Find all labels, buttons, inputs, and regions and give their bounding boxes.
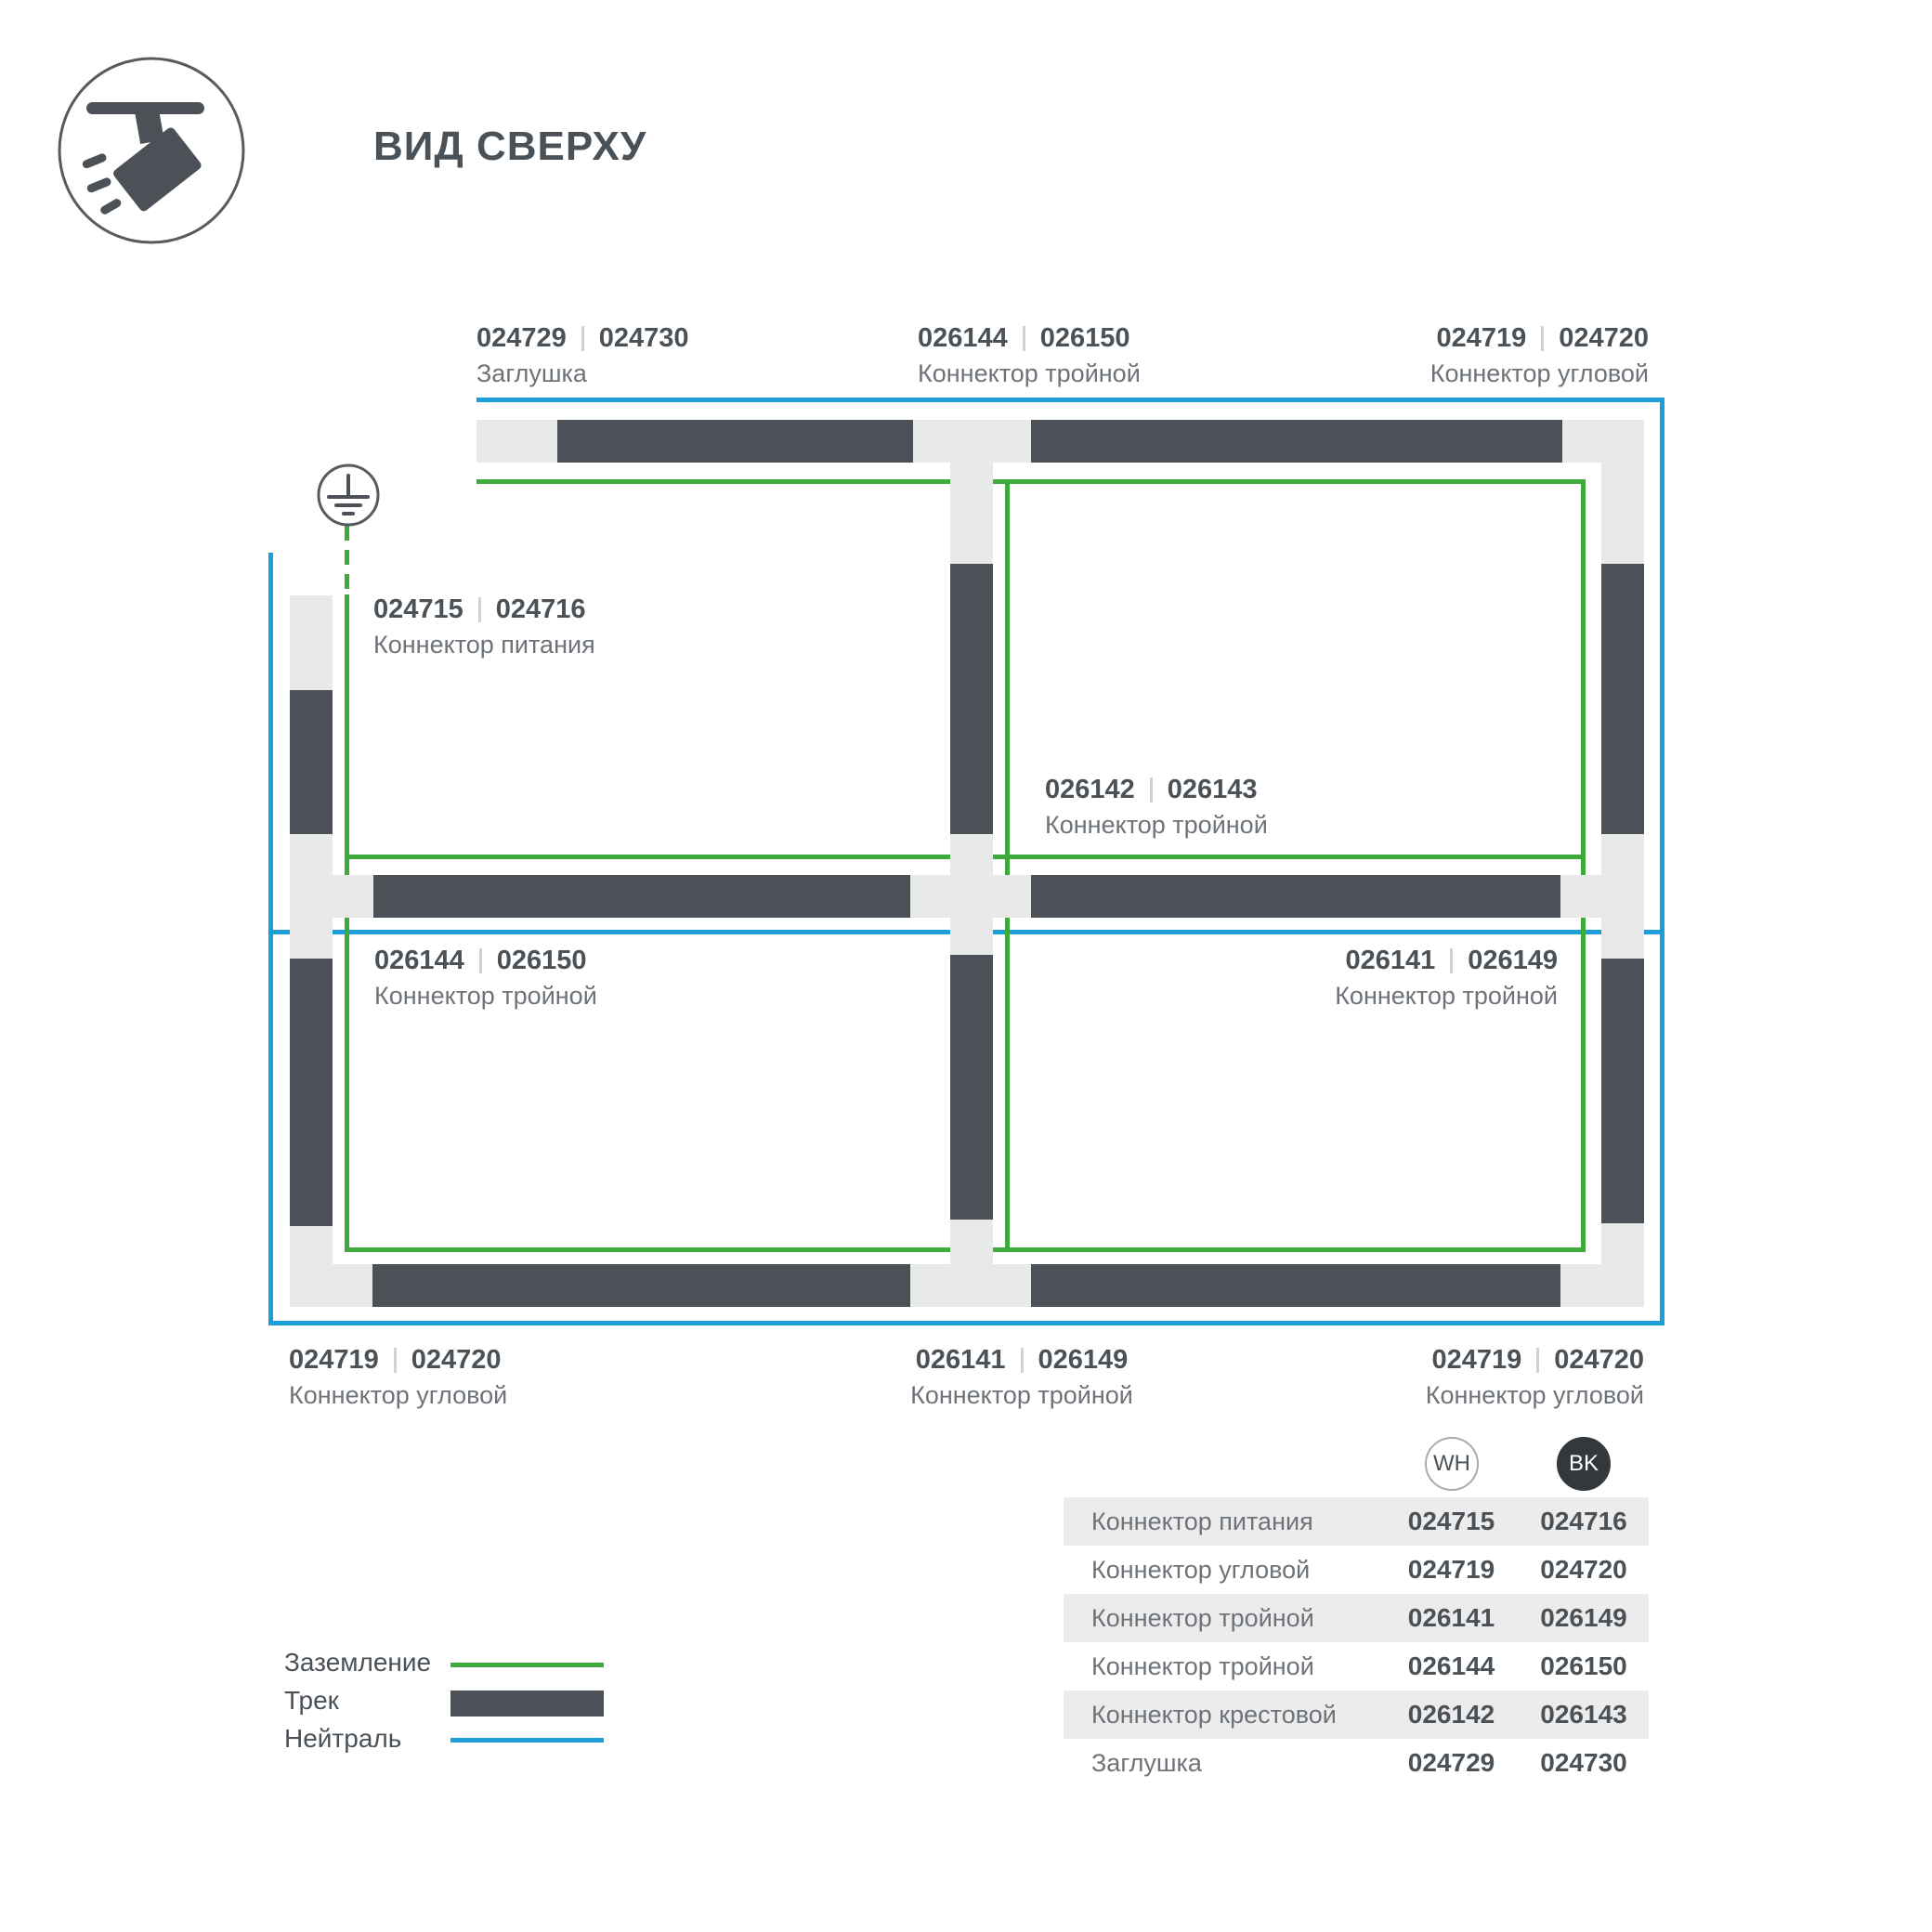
track-segment xyxy=(290,690,333,834)
part-numbers: 026144 026150 xyxy=(918,323,1141,353)
ground-line-right xyxy=(1581,479,1586,1252)
page: ВИД СВЕРХУ 024 xyxy=(0,0,1932,1932)
separator xyxy=(1150,777,1153,803)
track-segment xyxy=(1031,875,1560,918)
separator xyxy=(1450,948,1453,973)
separator xyxy=(1021,1348,1024,1373)
ground-line-center xyxy=(1005,479,1010,1252)
legend-swatch-neutral xyxy=(450,1738,604,1743)
ground-dash xyxy=(345,574,349,589)
label-corner-top-right: 024719 024720 Коннектор угловой xyxy=(1430,323,1649,387)
neutral-line-top xyxy=(476,398,1664,402)
label-end-cap: 024729 024730 Заглушка xyxy=(476,323,689,387)
parts-table: Коннектор питания 024715 024716 Коннекто… xyxy=(1064,1497,1649,1787)
label-cross-connector: 026142 026143 Коннектор тройной xyxy=(1045,775,1268,839)
table-row: Коннектор тройной 026144 026150 xyxy=(1064,1642,1649,1690)
label-t-connector-top: 026144 026150 Коннектор тройной xyxy=(918,323,1141,387)
label-power-connector: 024715 024716 Коннектор питания xyxy=(373,594,595,659)
separator xyxy=(479,948,482,973)
ground-dash xyxy=(345,526,349,541)
legend-label-track: Трек xyxy=(284,1686,339,1716)
track-segment xyxy=(290,959,333,1226)
label-corner-bottom-left: 024719 024720 Коннектор угловой xyxy=(289,1345,507,1409)
label-corner-bottom-right: 024719 024720 Коннектор угловой xyxy=(1426,1345,1644,1409)
part-numbers: 024719 024720 xyxy=(1430,323,1649,353)
separator xyxy=(1536,1348,1539,1373)
label-t-connector-right: 026141 026149 Коннектор тройной xyxy=(1335,946,1558,1010)
track-segment xyxy=(372,1264,910,1307)
part-numbers: 026144 026150 xyxy=(374,946,597,975)
separator xyxy=(1023,326,1025,351)
legend-swatch-track xyxy=(450,1690,604,1717)
track-segment xyxy=(373,875,910,918)
neutral-line-bottom xyxy=(268,1321,1664,1325)
track-segment xyxy=(1031,1264,1560,1307)
part-numbers: 024719 024720 xyxy=(1426,1345,1644,1375)
separator xyxy=(478,597,481,622)
ground-dash xyxy=(345,550,349,565)
page-title: ВИД СВЕРХУ xyxy=(373,124,646,170)
part-numbers: 026141 026149 xyxy=(1335,946,1558,975)
ground-line-top xyxy=(476,479,1586,484)
part-numbers: 026142 026143 xyxy=(1045,775,1268,804)
track-segment xyxy=(950,955,993,1220)
color-badge-white: WH xyxy=(1425,1437,1479,1491)
color-badge-black: BK xyxy=(1557,1437,1611,1491)
label-t-connector-bottom: 026141 026149 Коннектор тройной xyxy=(887,1345,1156,1409)
track-segment xyxy=(1601,564,1644,834)
legend-swatch-ground xyxy=(450,1663,604,1667)
separator xyxy=(394,1348,397,1373)
table-row: Заглушка 024729 024730 xyxy=(1064,1739,1649,1787)
ground-earth-icon xyxy=(316,463,381,528)
track-light-icon xyxy=(56,55,247,246)
part-numbers: 024715 024716 xyxy=(373,594,595,624)
neutral-line-right xyxy=(1660,398,1664,1325)
separator xyxy=(1541,326,1544,351)
legend-label-ground: Заземление xyxy=(284,1648,431,1677)
track-segment xyxy=(950,564,993,834)
label-t-connector-left: 026144 026150 Коннектор тройной xyxy=(374,946,597,1010)
part-numbers: 024729 024730 xyxy=(476,323,689,353)
table-row: Коннектор питания 024715 024716 xyxy=(1064,1497,1649,1546)
part-numbers: 024719 024720 xyxy=(289,1345,507,1375)
part-numbers: 026141 026149 xyxy=(887,1345,1156,1375)
track-segment xyxy=(1601,959,1644,1223)
track-segment xyxy=(557,420,913,463)
separator xyxy=(581,326,584,351)
ground-line-left xyxy=(345,594,349,1252)
legend-label-neutral: Нейтраль xyxy=(284,1724,401,1754)
table-row: Коннектор угловой 024719 024720 xyxy=(1064,1546,1649,1594)
neutral-line-left xyxy=(268,553,273,1325)
table-row: Коннектор крестовой 026142 026143 xyxy=(1064,1690,1649,1739)
table-row: Коннектор тройной 026141 026149 xyxy=(1064,1594,1649,1642)
track-segment xyxy=(1031,420,1562,463)
